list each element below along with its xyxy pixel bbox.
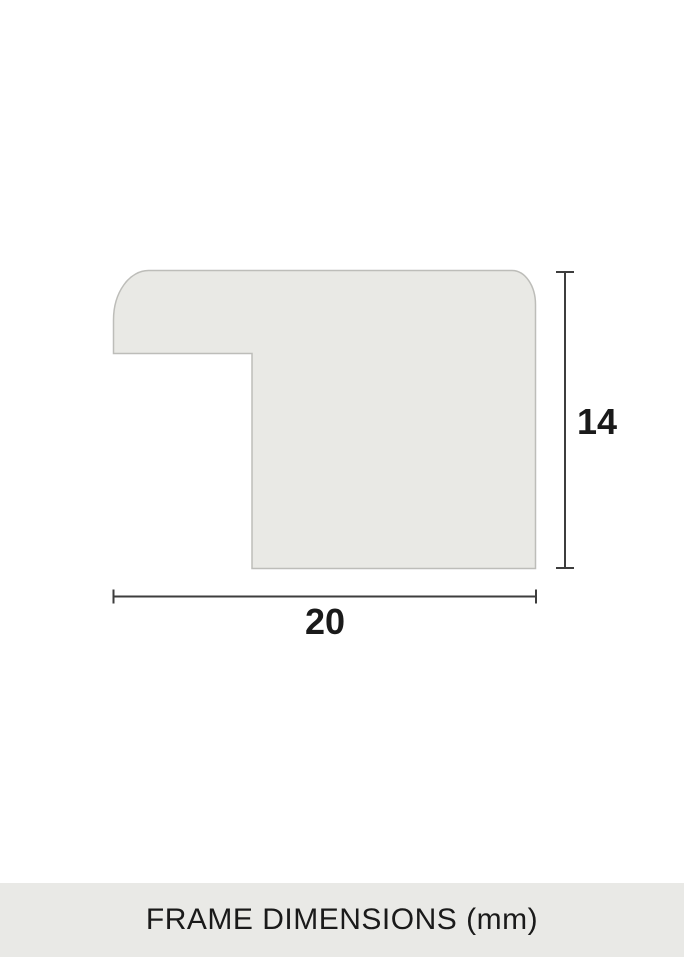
diagram-canvas: 14 20 [0,0,684,883]
frame-profile-diagram: 14 20 [0,0,684,883]
frame-profile-page: 14 20 FRAME DIMENSIONS (mm) [0,0,684,957]
height-dimension: 14 [556,272,617,568]
width-dimension: 20 [114,590,537,643]
caption-bar: FRAME DIMENSIONS (mm) [0,883,684,957]
frame-profile-shape [114,271,536,569]
caption-text: FRAME DIMENSIONS (mm) [146,903,538,937]
width-dimension-value: 20 [305,601,345,642]
height-dimension-value: 14 [577,401,617,442]
